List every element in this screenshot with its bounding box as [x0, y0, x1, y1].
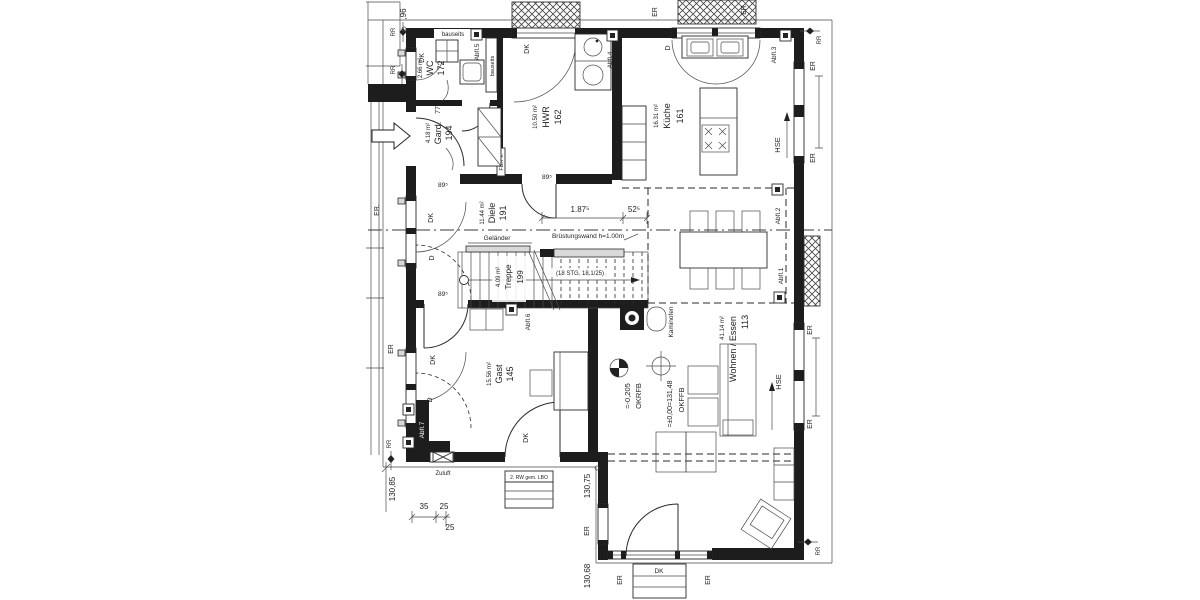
- er-bracket-wohnen: [812, 338, 820, 416]
- drain-symbol-7a: [403, 404, 414, 415]
- treppe-number: 199: [516, 270, 525, 284]
- wardrobe-gard: [478, 108, 501, 166]
- gard-number: 194: [444, 125, 454, 140]
- dim-13085: 130,85: [388, 476, 397, 501]
- canopy-hatch-left: [512, 2, 580, 28]
- drain-label-1: Abfl.1: [778, 267, 785, 284]
- rr-label-bottomright: RR: [816, 546, 822, 555]
- terrace-glazing: [608, 504, 712, 559]
- gast-name: Gast: [494, 364, 504, 384]
- wc-number: 172: [436, 60, 446, 75]
- wardrobe-gast: [470, 309, 503, 330]
- kaminofen-label: Kaminofen: [668, 306, 675, 337]
- drain-symbol-3: [780, 30, 791, 41]
- armchair: [741, 499, 791, 549]
- desk-gast: [530, 352, 588, 410]
- er-label-left-2: ER: [388, 344, 395, 354]
- dk-label-terrace: DK: [654, 568, 664, 575]
- bauseits-label-shaft: bauseits: [490, 56, 496, 77]
- interior-walls: [416, 38, 648, 452]
- er-label-bracket-1b: ER: [810, 153, 817, 163]
- okrfb-value: =-0,205: [623, 383, 632, 409]
- entrance-arrow-icon: [372, 123, 410, 149]
- drain-label-5: Abfl.5: [474, 43, 481, 60]
- dim-525: 52⁵: [628, 205, 640, 214]
- room-label-wohnen: 113 Wohnen / Essen 41.14 m²: [720, 315, 750, 382]
- room-label-gast: 145 Gast 15.56 m²: [487, 362, 515, 386]
- diele-area: 11.44 m²: [480, 201, 486, 224]
- drain-label-4: Abfl.4: [607, 51, 614, 68]
- drain-label-6: Abfl.6: [525, 313, 532, 330]
- dining-table: [680, 211, 767, 289]
- stair-direction-arrow: [631, 277, 640, 283]
- rr-mark-topleft: [400, 22, 407, 42]
- dim-895-1: 89⁵: [438, 182, 448, 189]
- er-bracket-kueche: [815, 76, 823, 148]
- room-label-diele: 191 Diele 11.44 m²: [480, 201, 508, 224]
- bruestungswand-label: Brüstungswand h=1.00m: [552, 233, 624, 240]
- er-label-top-2: ER: [741, 5, 748, 15]
- kueche-number: 161: [675, 108, 685, 123]
- d-label-kueche-window: D: [665, 45, 672, 50]
- wc-name: WC: [425, 60, 435, 75]
- toilet-fixture: [436, 40, 458, 62]
- sofa: [688, 344, 756, 436]
- wall-shelf: [774, 448, 794, 500]
- hse-label-wohnen: HSE: [774, 374, 783, 389]
- dk-label-gast-south-door: DK: [523, 433, 530, 443]
- dim-96: ,96: [399, 8, 408, 20]
- gard-name: Gard.: [433, 122, 443, 145]
- room-label-gard: 194 Gard. 4.18 m²: [426, 122, 454, 170]
- dim-13075: 130,75: [583, 473, 592, 498]
- treppe-name: Treppe: [504, 264, 513, 290]
- bruestungswand-leader: [624, 234, 638, 240]
- drain-symbol-2: [772, 184, 783, 195]
- terrace-door-swing: [626, 504, 678, 556]
- gast-number: 145: [505, 366, 515, 381]
- er-label-bracket-2b: ER: [807, 419, 814, 429]
- drain-label-7: Abfl.7: [419, 421, 426, 438]
- er-label-bracket-1a: ER: [810, 61, 817, 71]
- railing-bar: [466, 246, 530, 252]
- gast-south-door-swing: [505, 402, 560, 457]
- treppe-area: 4.09 m²: [496, 267, 502, 287]
- drain-symbol-6: [506, 304, 517, 315]
- stair-post: [460, 276, 469, 285]
- rr-label-bottomleft: RR: [387, 439, 393, 448]
- dim-895-2: 89⁵: [542, 174, 552, 181]
- gard-area: 4.18 m²: [426, 123, 432, 143]
- wohnen-name: Wohnen / Essen: [728, 316, 738, 382]
- dk-label-gast-window: DK: [430, 355, 437, 365]
- er-label-bracket-2a: ER: [807, 325, 814, 335]
- zuluft-label: Zuluft: [435, 471, 450, 477]
- drain-symbol-1: [774, 292, 785, 303]
- kueche-area: 16.31 m²: [654, 104, 660, 128]
- okffb-value: =±0,00=131,48: [667, 380, 674, 427]
- floorplan-sheet: ER ER DK D DK DK DK D DK D: [0, 0, 1200, 600]
- wohnen-number: 113: [740, 315, 750, 329]
- okrfb-label: OKRFB: [634, 383, 643, 409]
- dim-895-3: 89⁵: [438, 291, 448, 298]
- dim-chain-352525: [409, 511, 450, 527]
- kueche-name: Küche: [662, 103, 672, 129]
- wohnen-area: 41.14 m²: [720, 316, 726, 340]
- er-label-southwest: ER: [584, 526, 591, 536]
- er-label-left-1: ER.: [374, 204, 381, 216]
- er-label-top-1: ER: [652, 7, 659, 17]
- hse-arrow: [784, 112, 790, 121]
- window-top-hwr: [512, 2, 580, 102]
- dim-25b: 25: [446, 523, 455, 532]
- hwr-door-swing: [522, 184, 556, 218]
- hwr-area: 10.50 m²: [533, 105, 539, 129]
- level-marker-okrfb: [610, 359, 628, 377]
- dim-77: 77: [435, 106, 442, 114]
- dim-1875: 1.87⁵: [571, 205, 590, 214]
- drain-symbol-5: [471, 29, 482, 40]
- diele-name: Diele: [487, 203, 497, 224]
- window-kueche-right: [784, 62, 804, 163]
- rr-label-topright: RR: [817, 35, 823, 44]
- d-label-diele-window: D: [429, 255, 436, 260]
- dim-35: 35: [420, 502, 429, 511]
- rr-label-left: RR: [391, 65, 397, 74]
- dk-label-diele-window: DK: [428, 213, 435, 223]
- washer-dryer-fixture: [575, 34, 611, 90]
- rr-label-topleft: RR: [391, 27, 397, 36]
- parapet-wall: [554, 249, 624, 257]
- chair-gast: [530, 370, 552, 396]
- kitchen-sink-unit: [682, 36, 748, 58]
- drain-symbol-4: [607, 30, 618, 41]
- rettungsweg-label: 2. RW gem. LBO: [510, 475, 548, 481]
- drain-label-2: Abfl.2: [775, 207, 782, 224]
- kaminofen-fixture: [620, 306, 666, 331]
- hwr-number: 162: [553, 109, 563, 124]
- kitchen-counter-west: [622, 106, 646, 180]
- gast-area: 15.56 m²: [487, 362, 493, 386]
- chimney-hatch: [804, 236, 820, 306]
- okffb-label: OKFFB: [677, 387, 686, 412]
- kitchen-island: [700, 88, 737, 175]
- zuluft-vent: [430, 452, 454, 462]
- hwr-name: HWR: [541, 106, 551, 128]
- bauseits-label-top: bauseits: [442, 32, 464, 38]
- er-label-terrace-2: ER: [705, 575, 712, 585]
- washbasin-fixture: [460, 60, 484, 84]
- dim-13068: 130,68: [583, 563, 592, 588]
- rr-mark-left: [399, 64, 406, 84]
- level-marker-okffb: [646, 351, 676, 381]
- dk-label-hwr-window: DK: [524, 44, 531, 54]
- stg-label: (18 STG. 18,1/25): [556, 271, 604, 277]
- floorplan-drawing: ER ER DK D DK DK DK D DK D: [0, 0, 1200, 600]
- room-label-hwr: 162 HWR 10.50 m²: [533, 105, 563, 129]
- gast-door-swing: [424, 304, 468, 348]
- gelaender-label: Geländer: [484, 235, 512, 242]
- diele-number: 191: [498, 205, 508, 220]
- drain-label-3: Abfl.3: [771, 46, 778, 63]
- drain-symbol-7b: [403, 437, 414, 448]
- er-label-terrace-1: ER: [617, 575, 624, 585]
- parapet-wall-dark: [540, 249, 554, 257]
- dim-25a: 25: [440, 502, 449, 511]
- wc-area: 2.66 m²: [418, 58, 424, 78]
- window-wohnen-west: [598, 504, 608, 544]
- room-label-kueche: 161 Küche 16.31 m²: [654, 103, 685, 129]
- hse-label-kueche: HSE: [773, 137, 782, 152]
